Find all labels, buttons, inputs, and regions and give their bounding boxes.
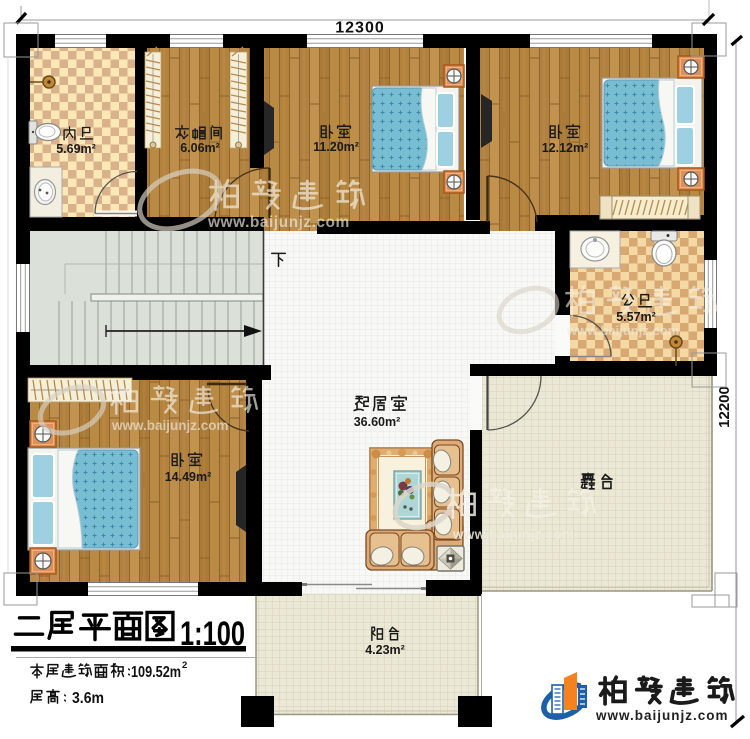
svg-text:4.23m²: 4.23m² xyxy=(365,643,405,657)
svg-text:11.20m²: 11.20m² xyxy=(313,140,359,154)
svg-text:12300: 12300 xyxy=(335,20,385,37)
svg-text:www.baijunjz.com: www.baijunjz.com xyxy=(207,214,350,231)
svg-text:6.06m²: 6.06m² xyxy=(180,141,220,155)
svg-text:2: 2 xyxy=(182,660,187,671)
svg-text:12.12m²: 12.12m² xyxy=(542,141,589,155)
svg-text:5.69m²: 5.69m² xyxy=(56,142,96,156)
svg-text:3.6m: 3.6m xyxy=(72,690,104,707)
svg-text:14.49m²: 14.49m² xyxy=(165,470,212,484)
svg-text:5.57m²: 5.57m² xyxy=(616,310,656,324)
svg-text:109.52m: 109.52m xyxy=(131,664,181,681)
svg-text:www.baijunjz.com: www.baijunjz.com xyxy=(452,527,574,542)
svg-text:www.baijunjz.com: www.baijunjz.com xyxy=(595,708,729,723)
svg-text:12200: 12200 xyxy=(716,386,733,428)
svg-text:www.baijunjz.com: www.baijunjz.com xyxy=(111,418,229,433)
svg-text:www.baijunjz.com: www.baijunjz.com xyxy=(566,323,679,338)
svg-text:36.60m²: 36.60m² xyxy=(354,415,401,429)
